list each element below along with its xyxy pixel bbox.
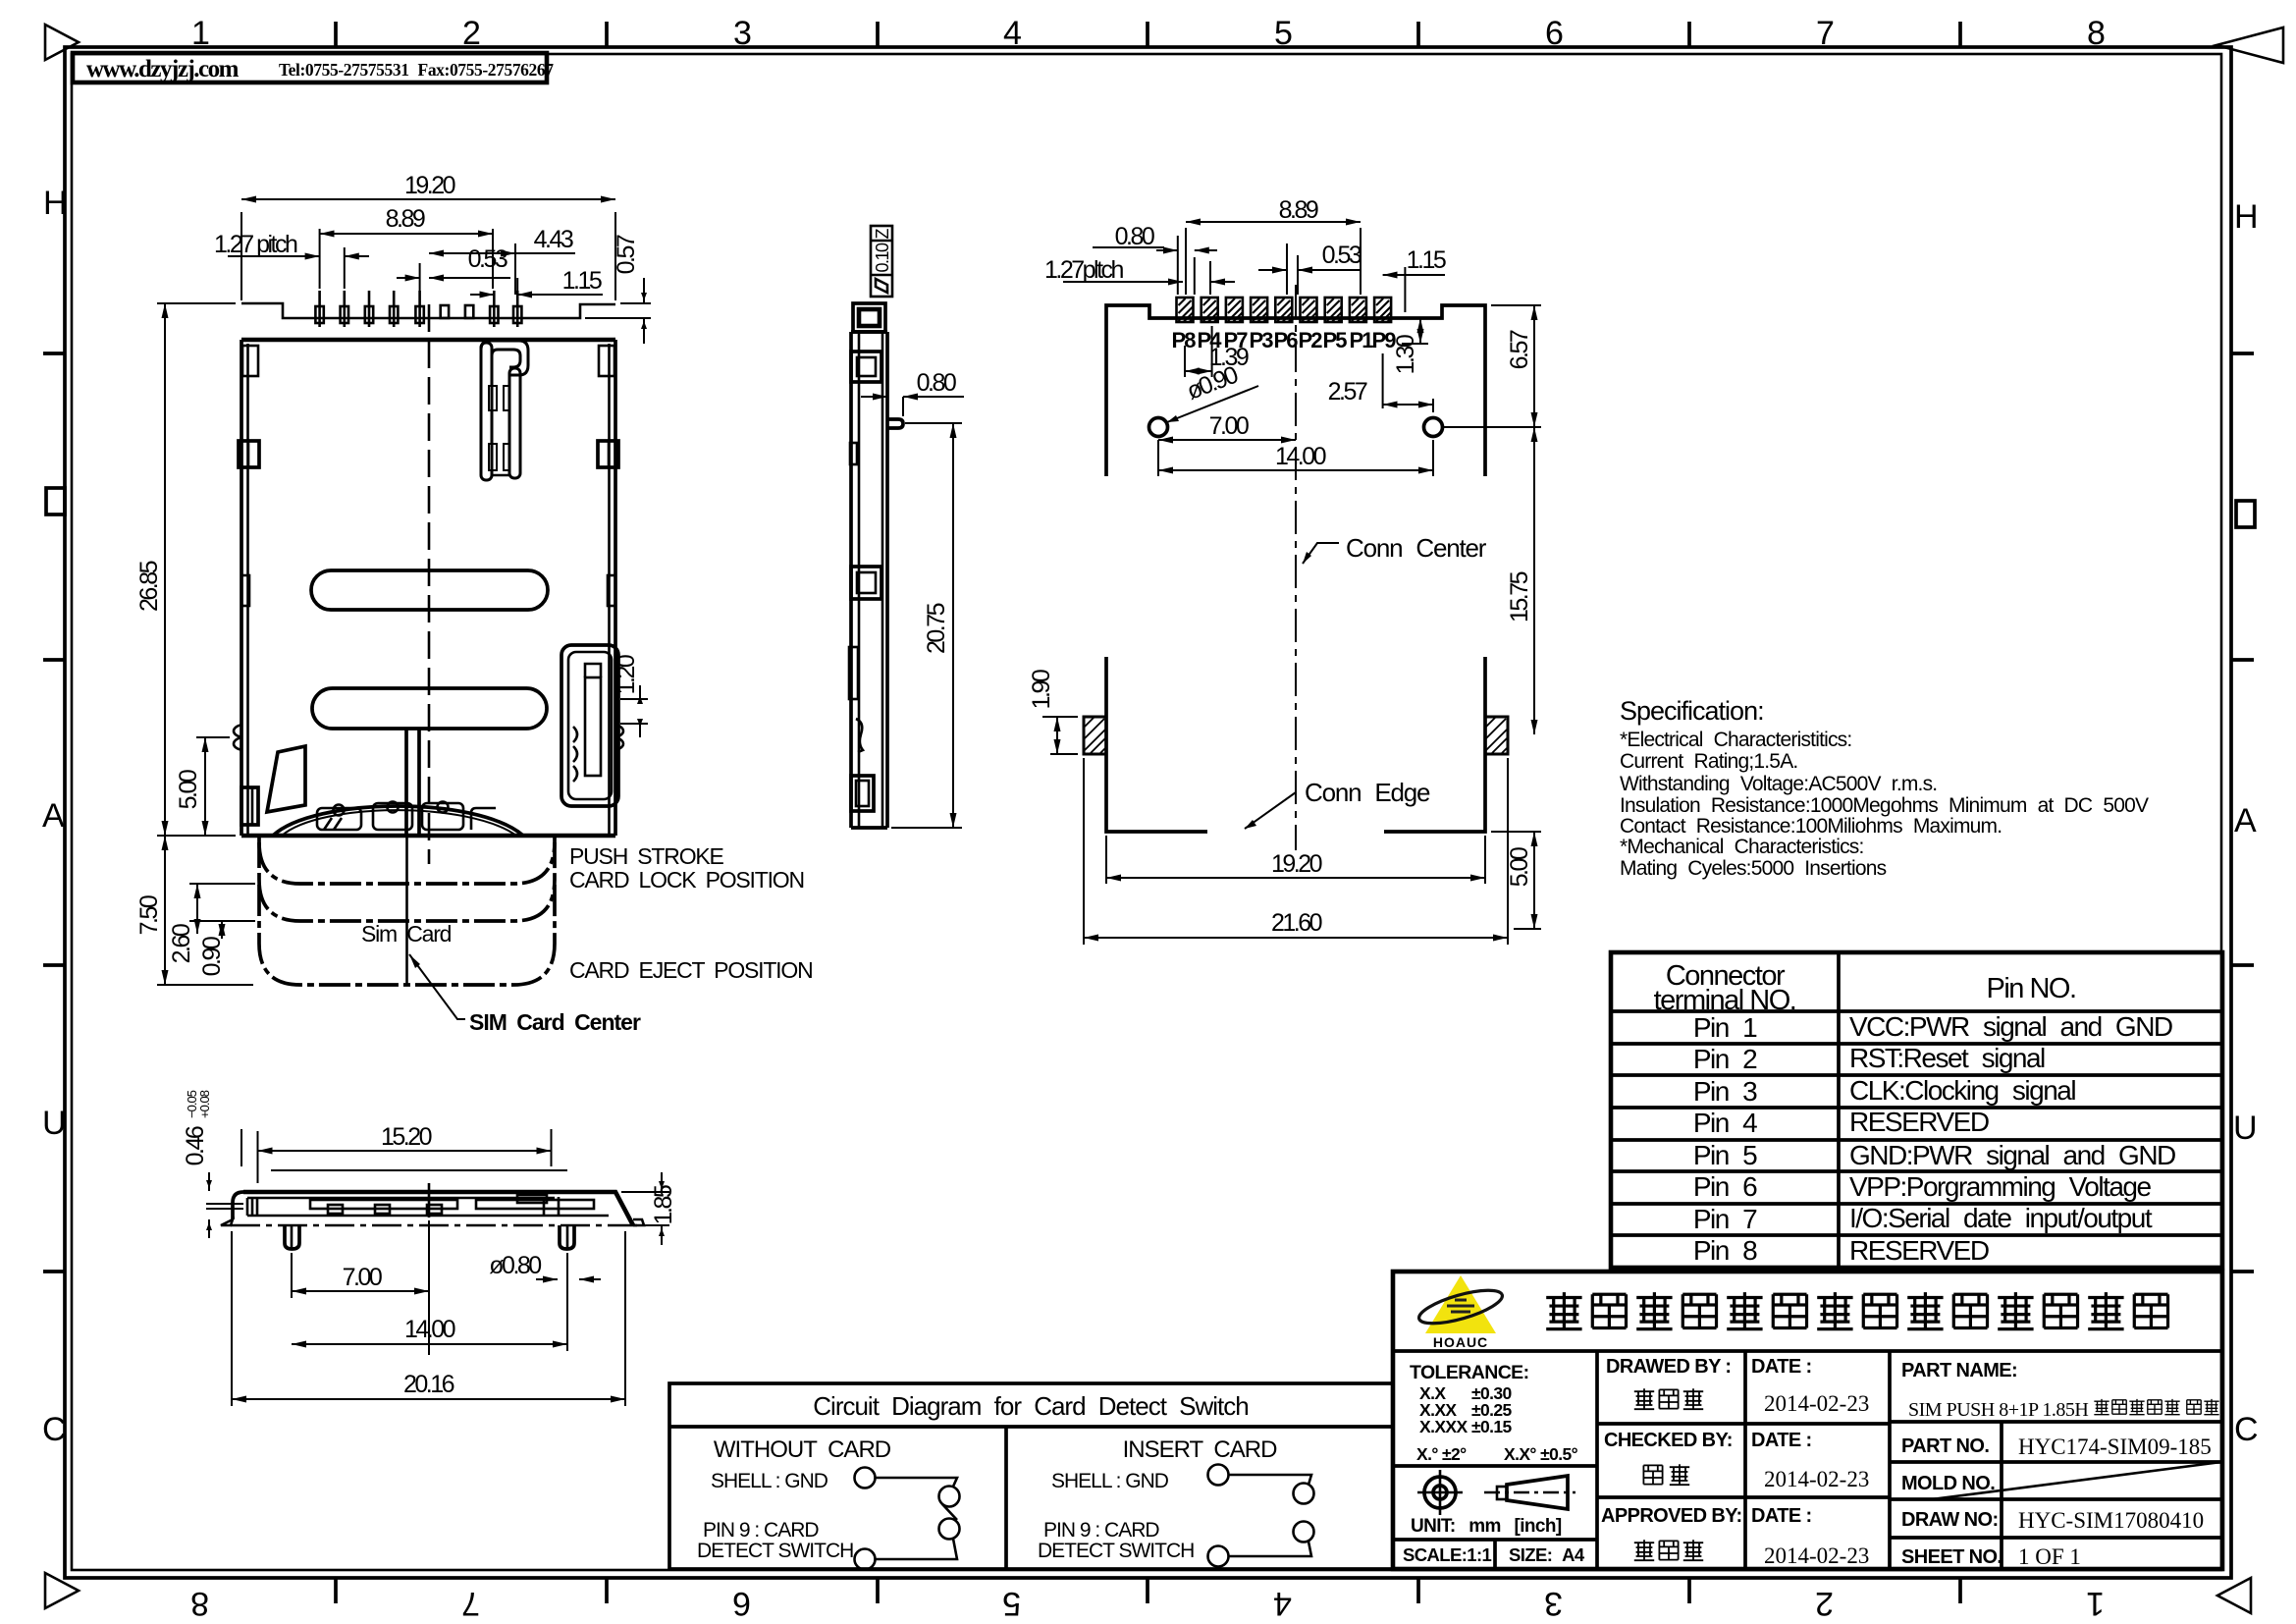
svg-text:0.46: 0.46	[182, 1126, 209, 1165]
svg-text:Pin 3: Pin 3	[1693, 1076, 1757, 1107]
svg-text:19.20: 19.20	[404, 172, 455, 199]
svg-text:2: 2	[462, 15, 480, 52]
svg-text:H: H	[2234, 198, 2258, 236]
svg-text:*Mechanical Characteristics:: *Mechanical Characteristics:	[1620, 836, 1864, 858]
svg-text:P3: P3	[1250, 328, 1274, 352]
svg-text:20.75: 20.75	[923, 603, 950, 654]
svg-text:SHELL : GND: SHELL : GND	[1051, 1470, 1169, 1492]
svg-text:0.10: 0.10	[873, 243, 892, 273]
svg-text:H: H	[43, 185, 67, 222]
svg-text:2014-02-23: 2014-02-23	[1764, 1391, 1869, 1416]
svg-text:Pin 8: Pin 8	[1693, 1235, 1757, 1266]
svg-text:6: 6	[733, 1585, 751, 1622]
svg-text:DATE :: DATE :	[1751, 1505, 1812, 1527]
svg-text:P8: P8	[1172, 328, 1197, 352]
svg-text:DRAWED BY :: DRAWED BY :	[1606, 1356, 1731, 1378]
svg-text:1: 1	[191, 15, 209, 52]
svg-text:8.89: 8.89	[1279, 196, 1318, 224]
svg-text:21.60: 21.60	[1271, 909, 1322, 937]
svg-text:UNIT: mm [inch]: UNIT: mm [inch]	[1411, 1516, 1562, 1537]
svg-text:CLK:Clocking signal: CLK:Clocking signal	[1849, 1075, 2075, 1106]
svg-text:4.43: 4.43	[534, 226, 573, 253]
svg-text:DRAW NO:: DRAW NO:	[1901, 1509, 1999, 1531]
svg-text:26.85: 26.85	[135, 561, 163, 612]
svg-text:VCC:PWR signal and GND: VCC:PWR signal and GND	[1849, 1011, 2172, 1042]
svg-text:CARD LOCK POSITION: CARD LOCK POSITION	[569, 867, 804, 893]
svg-text:1: 1	[2087, 1585, 2105, 1622]
svg-text:PART NO.: PART NO.	[1901, 1435, 1989, 1457]
svg-text:GND:PWR signal and GND: GND:PWR signal and GND	[1849, 1140, 2175, 1170]
svg-text:1.85: 1.85	[650, 1185, 677, 1224]
svg-text:8.89: 8.89	[386, 205, 425, 233]
svg-text:3: 3	[1545, 1585, 1563, 1622]
svg-text:SHEET NO.: SHEET NO.	[1901, 1546, 2002, 1568]
svg-text:0.90: 0.90	[198, 937, 226, 976]
svg-text:1.15: 1.15	[1407, 246, 1446, 274]
svg-text:MOLD NO.: MOLD NO.	[1901, 1473, 1995, 1494]
svg-text:PART NAME:: PART NAME:	[1901, 1360, 2017, 1381]
svg-text:0.53: 0.53	[468, 245, 507, 273]
svg-text:CHECKED BY:: CHECKED BY:	[1604, 1430, 1733, 1451]
svg-text:Pin 5: Pin 5	[1693, 1140, 1757, 1170]
svg-text:VPP:Porgramming Voltage: VPP:Porgramming Voltage	[1849, 1171, 2151, 1202]
svg-text:2.57: 2.57	[1328, 378, 1367, 406]
svg-text:Contact Resistance:100Miliohm: Contact Resistance:100Miliohms Maximum.	[1620, 815, 2002, 838]
svg-text:5.00: 5.00	[175, 770, 202, 809]
svg-text:0.80: 0.80	[917, 369, 956, 397]
svg-text:Pin 2: Pin 2	[1693, 1044, 1757, 1074]
svg-text:HYC174-SIM09-185: HYC174-SIM09-185	[2018, 1435, 2212, 1459]
svg-text:P2: P2	[1299, 328, 1323, 352]
svg-text:Pin 7: Pin 7	[1693, 1204, 1757, 1234]
svg-text:C: C	[42, 1411, 66, 1448]
svg-text:7.00: 7.00	[343, 1264, 382, 1291]
svg-text:X.° ±2°: X.° ±2°	[1416, 1444, 1467, 1464]
svg-text:2: 2	[1816, 1585, 1834, 1622]
svg-text:APPROVED BY:: APPROVED BY:	[1601, 1505, 1742, 1527]
svg-text:HYC-SIM17080410: HYC-SIM17080410	[2018, 1508, 2204, 1533]
svg-text:2014-02-23: 2014-02-23	[1764, 1543, 1869, 1568]
svg-text:INSERT CARD: INSERT CARD	[1123, 1436, 1277, 1463]
svg-text:RESERVED: RESERVED	[1849, 1107, 1989, 1137]
svg-text:U: U	[42, 1105, 66, 1142]
svg-text:PUSH STROKE: PUSH STROKE	[569, 843, 724, 869]
svg-text:U: U	[2233, 1110, 2257, 1147]
svg-text:DATE :: DATE :	[1751, 1430, 1812, 1451]
svg-text:Specification:: Specification:	[1620, 696, 1764, 726]
svg-text:6: 6	[1545, 15, 1563, 52]
svg-text:C: C	[2234, 1411, 2258, 1448]
svg-text:Withstanding Voltage:AC500V: Withstanding Voltage:AC500V r.m.s.	[1620, 773, 1937, 795]
svg-text:Circuit Diagram for Card D: Circuit Diagram for Card Detect Switch	[813, 1391, 1248, 1421]
svg-text:1.20: 1.20	[613, 655, 640, 694]
svg-text:Tel:0755-27575531 Fax:0755-27: Tel:0755-27575531 Fax:0755-27576267	[279, 60, 554, 80]
svg-text:15.75: 15.75	[1506, 571, 1533, 623]
svg-text:+0.08: +0.08	[197, 1090, 212, 1118]
svg-text:RST:Reset signal: RST:Reset signal	[1849, 1043, 2045, 1073]
svg-text:I/O:Serial date input/output: I/O:Serial date input/output	[1849, 1203, 2153, 1233]
svg-text:1.15: 1.15	[562, 267, 602, 295]
svg-text:RESERVED: RESERVED	[1849, 1235, 1989, 1266]
svg-text:Conn Center: Conn Center	[1346, 533, 1487, 563]
svg-text:1 OF 1: 1 OF 1	[2018, 1544, 2081, 1569]
svg-text:*Electrical Characteristitics: *Electrical Characteristitics:	[1620, 729, 1851, 751]
svg-text:www.dzyjzj.com: www.dzyjzj.com	[86, 56, 240, 82]
svg-text:A: A	[42, 797, 65, 835]
svg-text:15.20: 15.20	[381, 1123, 432, 1151]
svg-text:WITHOUT CARD: WITHOUT CARD	[714, 1436, 891, 1463]
svg-text:X.X° ±0.5°: X.X° ±0.5°	[1504, 1444, 1578, 1464]
svg-text:P6: P6	[1274, 328, 1299, 352]
svg-text:2.60: 2.60	[168, 924, 195, 963]
svg-text:8: 8	[2087, 15, 2105, 52]
svg-text:P1: P1	[1350, 328, 1374, 352]
svg-text:6.57: 6.57	[1506, 330, 1533, 369]
svg-text:Pin 6: Pin 6	[1693, 1171, 1757, 1202]
svg-text:3: 3	[733, 15, 751, 52]
svg-text:DETECT SWITCH: DETECT SWITCH	[1038, 1540, 1194, 1562]
svg-text:TOLERANCE:: TOLERANCE:	[1410, 1362, 1528, 1383]
svg-text:A: A	[2234, 802, 2257, 839]
svg-text:CARD EJECT POSITION: CARD EJECT POSITION	[569, 957, 812, 983]
svg-text:P5: P5	[1323, 328, 1348, 352]
svg-text:ø0.80: ø0.80	[489, 1252, 541, 1279]
svg-text:DETECT SWITCH: DETECT SWITCH	[697, 1540, 853, 1562]
svg-text:Conn Edge: Conn Edge	[1305, 778, 1430, 807]
svg-text:Z: Z	[873, 229, 892, 240]
svg-text:±0.15: ±0.15	[1471, 1417, 1513, 1436]
svg-text:Sim Card: Sim Card	[361, 921, 452, 947]
svg-text:1.30: 1.30	[1392, 335, 1419, 374]
svg-text:7: 7	[462, 1585, 480, 1622]
svg-text:SCALE:1:1: SCALE:1:1	[1403, 1544, 1492, 1565]
svg-text:SIM Card Center: SIM Card Center	[469, 1009, 641, 1035]
svg-text:0.57: 0.57	[613, 235, 640, 274]
svg-text:0.53: 0.53	[1322, 242, 1362, 269]
svg-text:PIN 9 : CARD: PIN 9 : CARD	[703, 1519, 819, 1542]
svg-text:DATE :: DATE :	[1751, 1356, 1812, 1378]
svg-text:1.90: 1.90	[1028, 670, 1055, 709]
svg-text:4: 4	[1274, 1585, 1292, 1622]
svg-text:1.27pltch: 1.27pltch	[1044, 256, 1124, 284]
svg-text:5: 5	[1003, 1585, 1021, 1622]
svg-text:X.XXX: X.XXX	[1419, 1417, 1468, 1436]
svg-text:14.00: 14.00	[1275, 443, 1326, 470]
svg-text:Mating Cyeles:5000 Insertion: Mating Cyeles:5000 Insertions	[1620, 857, 1887, 880]
svg-text:SHELL : GND: SHELL : GND	[711, 1470, 828, 1492]
svg-text:7.00: 7.00	[1209, 412, 1249, 440]
svg-text:20.16: 20.16	[403, 1371, 454, 1398]
svg-text:2014-02-23: 2014-02-23	[1764, 1467, 1869, 1491]
svg-text:Pin 1: Pin 1	[1693, 1012, 1757, 1043]
svg-text:14.00: 14.00	[404, 1316, 455, 1343]
svg-text:PIN 9 : CARD: PIN 9 : CARD	[1043, 1519, 1159, 1542]
svg-text:7.50: 7.50	[135, 895, 163, 935]
svg-text:SIZE: A4: SIZE: A4	[1509, 1544, 1585, 1565]
svg-text:4: 4	[1003, 15, 1021, 52]
svg-text:5: 5	[1274, 15, 1292, 52]
svg-text:19.20: 19.20	[1271, 850, 1322, 878]
svg-text:Insulation Resistance:1000Meg: Insulation Resistance:1000Megohms Minimu…	[1620, 794, 2149, 817]
svg-text:HOAUC: HOAUC	[1433, 1334, 1488, 1350]
svg-text:Pin NO.: Pin NO.	[1986, 973, 2075, 1004]
svg-text:7: 7	[1816, 15, 1834, 52]
svg-text:8: 8	[191, 1585, 209, 1622]
svg-text:5.00: 5.00	[1506, 847, 1533, 887]
svg-text:Current Rating;1.5A.: Current Rating;1.5A.	[1620, 750, 1797, 773]
svg-text:Pin 4: Pin 4	[1693, 1108, 1757, 1138]
svg-text:SIM PUSH 8+1P 1.85H: SIM PUSH 8+1P 1.85H	[1908, 1399, 2088, 1421]
svg-text:1.27 pitch: 1.27 pitch	[214, 231, 297, 258]
svg-text:0.80: 0.80	[1115, 223, 1154, 250]
